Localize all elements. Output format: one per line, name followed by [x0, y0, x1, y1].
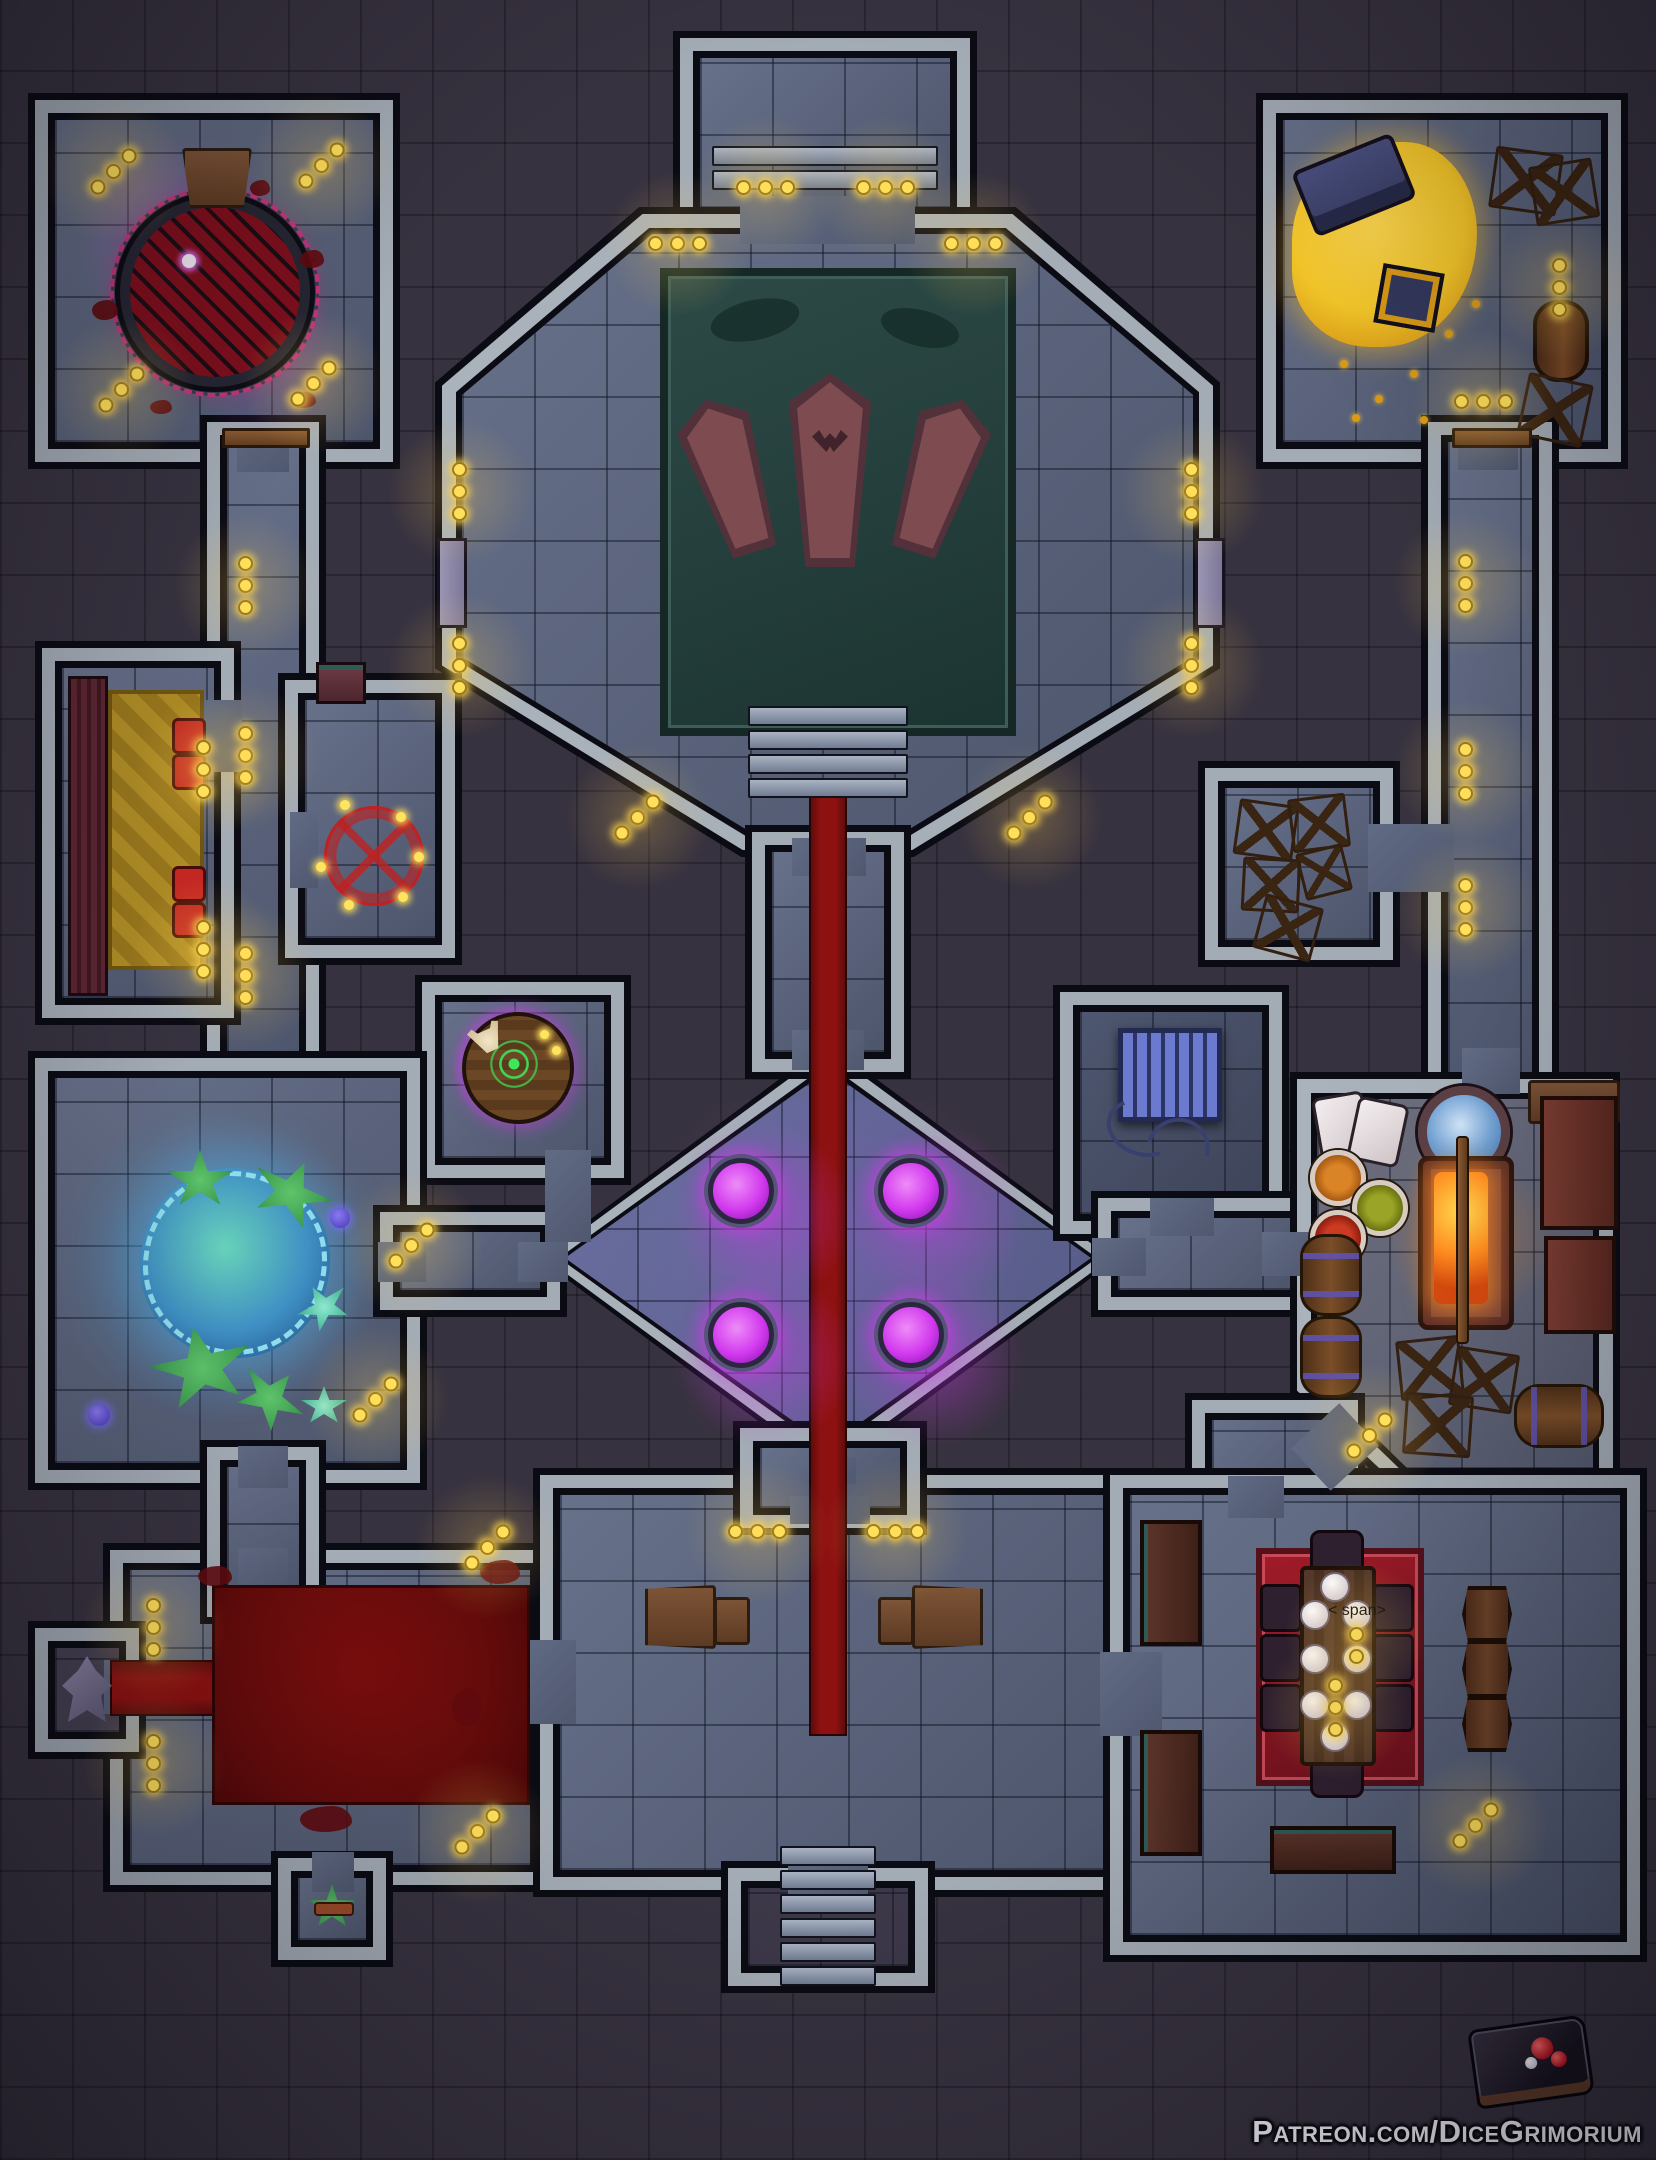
wooden-door	[222, 428, 310, 448]
arcane-brazier	[708, 1302, 774, 1368]
candle-sconce	[452, 636, 467, 695]
red-carpet	[811, 798, 845, 1734]
blood-pool	[215, 1588, 527, 1802]
candle-sconce	[146, 1734, 161, 1793]
candle-sconce	[1458, 742, 1473, 801]
coin	[1472, 300, 1480, 308]
doorway	[238, 1446, 288, 1488]
curtain	[68, 676, 108, 996]
doorway	[1368, 824, 1454, 892]
wall-chest	[1462, 1696, 1512, 1752]
bench-small	[714, 1597, 750, 1645]
plate	[1300, 1644, 1330, 1674]
dining-chair	[1260, 1634, 1302, 1682]
crypt-side-door-right	[1195, 538, 1225, 628]
blood-vat-grate	[120, 197, 310, 387]
candle-sconce	[238, 726, 253, 785]
candle-sconce	[1552, 258, 1567, 317]
sideboard	[1140, 1730, 1202, 1856]
roasting-spit	[1456, 1136, 1469, 1344]
candle-sconce	[728, 1524, 787, 1539]
dining-chair	[1372, 1684, 1414, 1732]
wall-chest	[1462, 1586, 1512, 1642]
candle-sconce	[238, 946, 253, 1005]
candle-sconce	[196, 740, 211, 799]
candle-sconce	[1454, 394, 1513, 409]
summoning-circle	[324, 806, 424, 906]
blood-splatter	[150, 400, 172, 414]
blood-splatter	[250, 180, 270, 196]
candle-sconce	[238, 556, 253, 615]
coin	[1420, 416, 1428, 424]
candle-sconce	[866, 1524, 925, 1539]
candle-sconce	[944, 236, 1003, 251]
barrel	[1300, 1316, 1362, 1398]
wooden-door	[1452, 428, 1532, 448]
dungeon-battle-map: < span> Patreon.com/DiceGrimorium	[0, 0, 1656, 2160]
blood-splatter	[480, 1560, 520, 1584]
bench-table	[912, 1585, 983, 1649]
plate	[1300, 1690, 1330, 1720]
blood-splatter	[452, 1688, 482, 1726]
blood-splatter	[198, 1566, 232, 1586]
sideboard	[1140, 1520, 1202, 1646]
vat-sparkle	[182, 254, 196, 268]
table-candles	[1328, 1678, 1343, 1737]
bench-table	[645, 1585, 716, 1649]
doorway-pentagram	[290, 812, 318, 888]
coin	[1445, 330, 1453, 338]
candle-sconce	[736, 180, 795, 195]
coin	[1375, 395, 1383, 403]
red-carpet-west	[112, 1662, 218, 1714]
candle-sconce	[1184, 636, 1199, 695]
candle-sconce	[1184, 462, 1199, 521]
arcane-brazier	[708, 1158, 774, 1224]
plate	[1342, 1690, 1372, 1720]
dining-chair	[1260, 1584, 1302, 1632]
coin	[1340, 360, 1348, 368]
table-candles: < span>	[1328, 1602, 1386, 1664]
bench-small	[878, 1597, 914, 1645]
doorway	[1092, 1238, 1146, 1276]
grimoire-logo-icon	[1467, 2014, 1595, 2110]
bench	[182, 148, 252, 208]
arcane-brazier	[878, 1158, 944, 1224]
barrel	[1300, 1234, 1362, 1316]
candle-sconce	[1458, 878, 1473, 937]
plate	[1320, 1572, 1350, 1602]
candle-sconce	[856, 180, 915, 195]
blood-splatter	[92, 300, 118, 320]
doorway-entry-crypt	[740, 196, 915, 244]
wooden-crate	[1528, 157, 1601, 226]
crypt-side-door-left	[437, 538, 467, 628]
doorway-cage	[1150, 1198, 1214, 1236]
candle-sconce	[1458, 554, 1473, 613]
barrel-on-side	[1514, 1384, 1604, 1448]
coin	[1352, 414, 1360, 422]
red-cushion	[172, 866, 206, 902]
dining-chair	[1260, 1684, 1302, 1732]
candle-sconce	[611, 791, 663, 843]
wall-chest	[1462, 1640, 1512, 1698]
candle-sconce	[146, 1598, 161, 1657]
doorway-ritual-diamond	[545, 1150, 591, 1242]
candle-sconce	[196, 920, 211, 979]
candle-sconce	[452, 462, 467, 521]
doorway	[1100, 1652, 1162, 1736]
wooden-crate	[1402, 1392, 1474, 1459]
stairs-down	[780, 1846, 876, 1986]
doorway	[518, 1242, 568, 1282]
counter-dark-red	[1544, 1236, 1616, 1334]
altar-alcove-table	[316, 662, 366, 704]
doorway	[238, 1548, 288, 1592]
doorway	[312, 1852, 354, 1892]
coin	[1410, 370, 1418, 378]
blood-splatter	[300, 1806, 352, 1832]
gold-box	[1373, 263, 1444, 333]
candle-sconce	[648, 236, 707, 251]
crypt-dais-steps	[748, 706, 908, 798]
patreon-credit: Patreon.com/DiceGrimorium	[1252, 2114, 1642, 2150]
candle-sconce	[1003, 791, 1055, 843]
doorway	[1228, 1476, 1284, 1518]
plant-pot-rim	[314, 1902, 354, 1916]
plate	[1300, 1600, 1330, 1630]
blood-splatter	[300, 250, 324, 268]
counter-dark-red	[1540, 1096, 1618, 1230]
arcane-brazier	[878, 1302, 944, 1368]
sideboard-bottom	[1270, 1826, 1396, 1874]
